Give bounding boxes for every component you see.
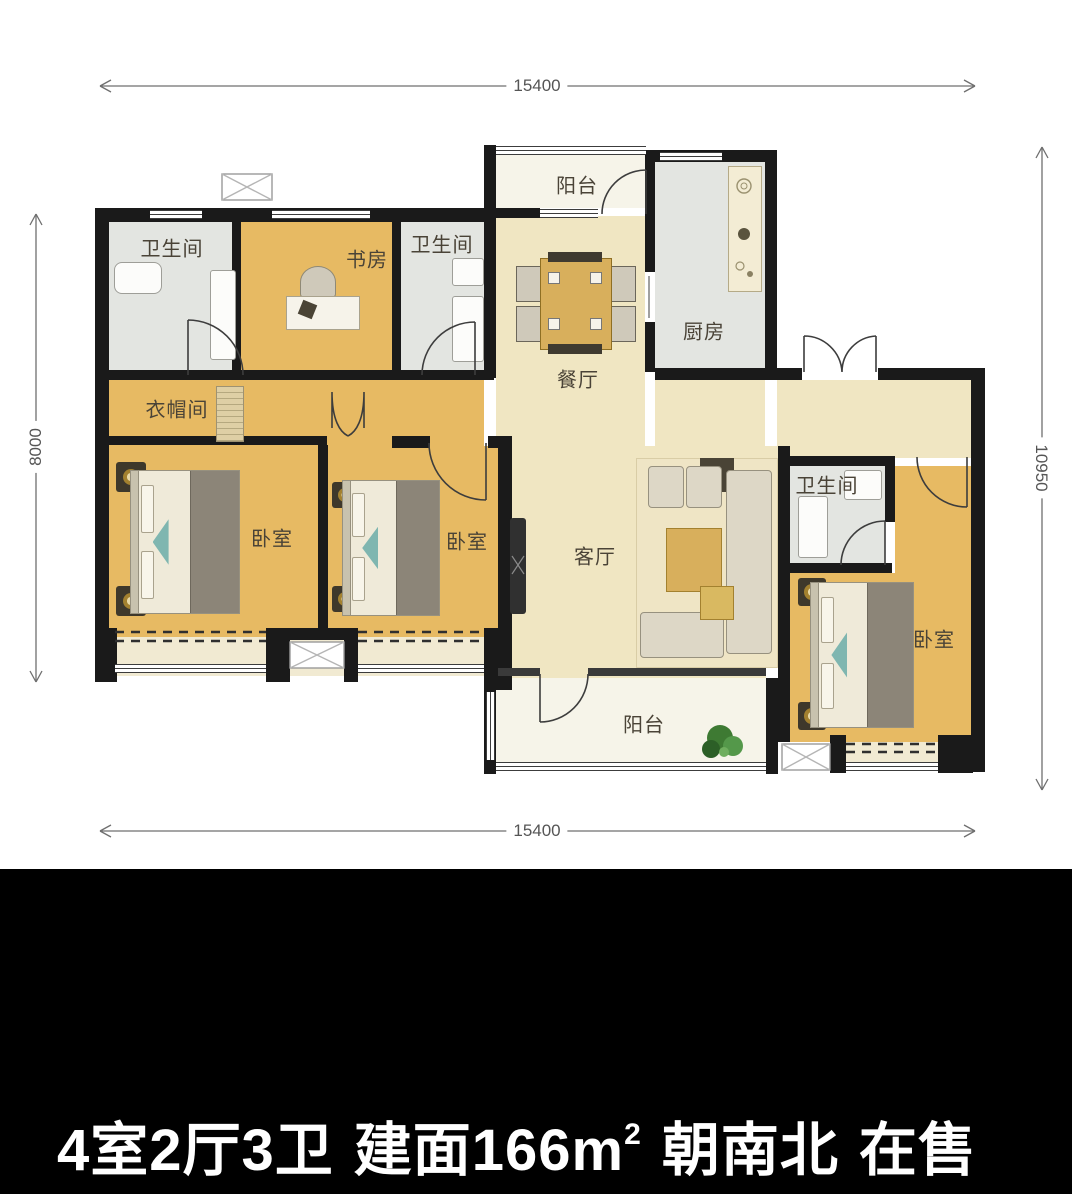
room-label-bedroom-left: 卧室 bbox=[251, 523, 293, 552]
dimension-top: 15400 bbox=[506, 76, 567, 96]
door-balcony-bottom bbox=[540, 674, 588, 722]
room-label-bath-middle: 卫生间 bbox=[411, 229, 474, 258]
door-bedroom-middle bbox=[429, 443, 486, 500]
door-balcony-top bbox=[602, 170, 646, 214]
door-entry-double bbox=[804, 336, 876, 372]
caption-area: 建面166m bbox=[354, 1118, 624, 1183]
room-label-dining: 餐厅 bbox=[557, 364, 599, 393]
room-label-balcony-top: 阳台 bbox=[556, 170, 598, 199]
room-label-bedroom-middle: 卧室 bbox=[446, 526, 488, 555]
room-label-living: 客厅 bbox=[574, 541, 616, 570]
door-hall-double bbox=[332, 392, 364, 436]
room-label-kitchen: 厨房 bbox=[683, 316, 725, 345]
caption-area-sup: 2 bbox=[624, 1118, 642, 1151]
caption-layout: 4室2厅3卫 bbox=[57, 1118, 334, 1183]
room-label-cloakroom: 衣帽间 bbox=[146, 394, 209, 423]
caption-status: 在售 bbox=[859, 1118, 977, 1183]
plan-overlay bbox=[0, 0, 1072, 869]
dimension-lines bbox=[30, 80, 1048, 837]
door-arcs bbox=[188, 170, 967, 722]
room-label-bedroom-right: 卧室 bbox=[913, 624, 955, 653]
dimension-bottom: 15400 bbox=[506, 821, 567, 841]
room-label-study: 书房 bbox=[346, 244, 388, 273]
room-label-bath-top-left: 卫生间 bbox=[141, 233, 204, 262]
plant-icon bbox=[702, 725, 743, 758]
door-bedroom-right bbox=[917, 457, 967, 507]
tv-mark bbox=[512, 556, 524, 574]
room-label-bath-right: 卫生间 bbox=[796, 470, 859, 499]
kitchen-appliance-icons bbox=[736, 179, 753, 277]
ac-platforms bbox=[222, 174, 830, 770]
dimension-right: 10950 bbox=[1031, 437, 1051, 498]
door-bath-middle bbox=[422, 322, 475, 375]
listing-caption: 4室2厅3卫建面166m2朝南北在售 bbox=[57, 1103, 977, 1187]
caption-orientation: 朝南北 bbox=[662, 1118, 839, 1183]
dimension-left: 8000 bbox=[26, 421, 46, 473]
bay-dashed-lines bbox=[115, 632, 938, 752]
door-bath-top-left bbox=[188, 320, 243, 375]
door-bath-right bbox=[841, 521, 885, 565]
room-label-balcony-bottom: 阳台 bbox=[623, 709, 665, 738]
floorplan-listing-image: 卫生间 书房 卫生间 阳台 厨房 餐厅 衣帽间 卧室 卧室 客厅 卫生间 卧室 … bbox=[0, 0, 1072, 1194]
